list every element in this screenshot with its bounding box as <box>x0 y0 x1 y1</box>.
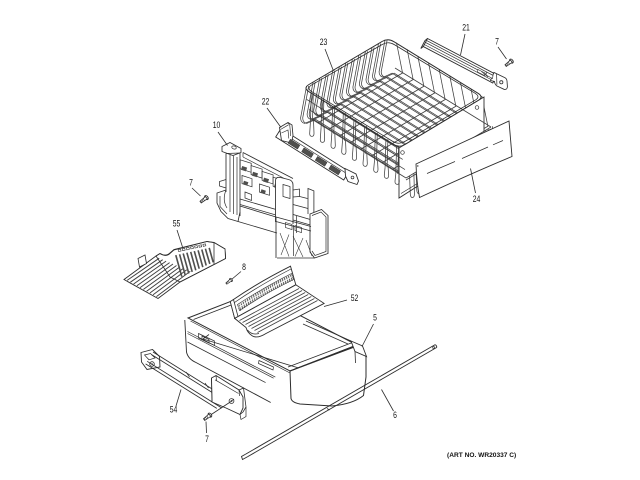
svg-text:5: 5 <box>373 313 377 324</box>
svg-text:7: 7 <box>189 178 193 189</box>
svg-text:6: 6 <box>393 410 397 421</box>
svg-text:52: 52 <box>351 293 359 304</box>
svg-text:22: 22 <box>262 97 270 108</box>
svg-text:55: 55 <box>173 219 181 230</box>
svg-text:8: 8 <box>242 262 246 273</box>
svg-text:21: 21 <box>462 23 470 34</box>
svg-text:23: 23 <box>320 37 328 48</box>
svg-text:24: 24 <box>473 194 481 205</box>
svg-text:(ART NO. WR20337 C): (ART NO. WR20337 C) <box>447 452 516 459</box>
svg-text:10: 10 <box>213 120 221 131</box>
svg-text:54: 54 <box>170 405 178 416</box>
svg-text:7: 7 <box>495 37 499 48</box>
svg-text:7: 7 <box>205 434 209 445</box>
